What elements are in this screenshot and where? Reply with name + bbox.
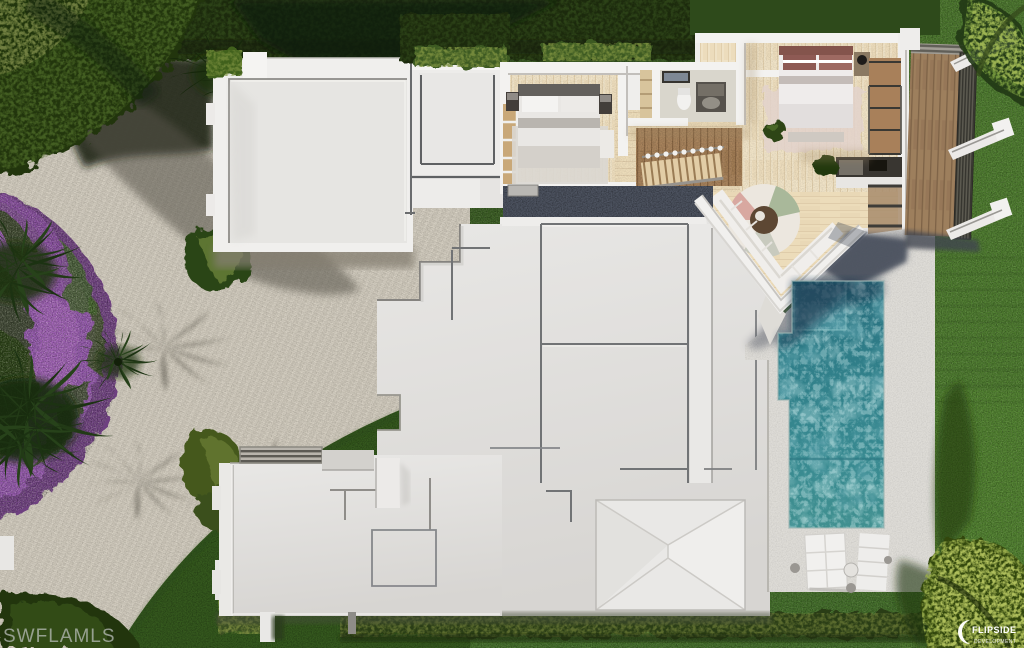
svg-text:DEVELOPMENT: DEVELOPMENT [974, 639, 1016, 645]
svg-text:FLIPSIDE: FLIPSIDE [972, 625, 1017, 635]
